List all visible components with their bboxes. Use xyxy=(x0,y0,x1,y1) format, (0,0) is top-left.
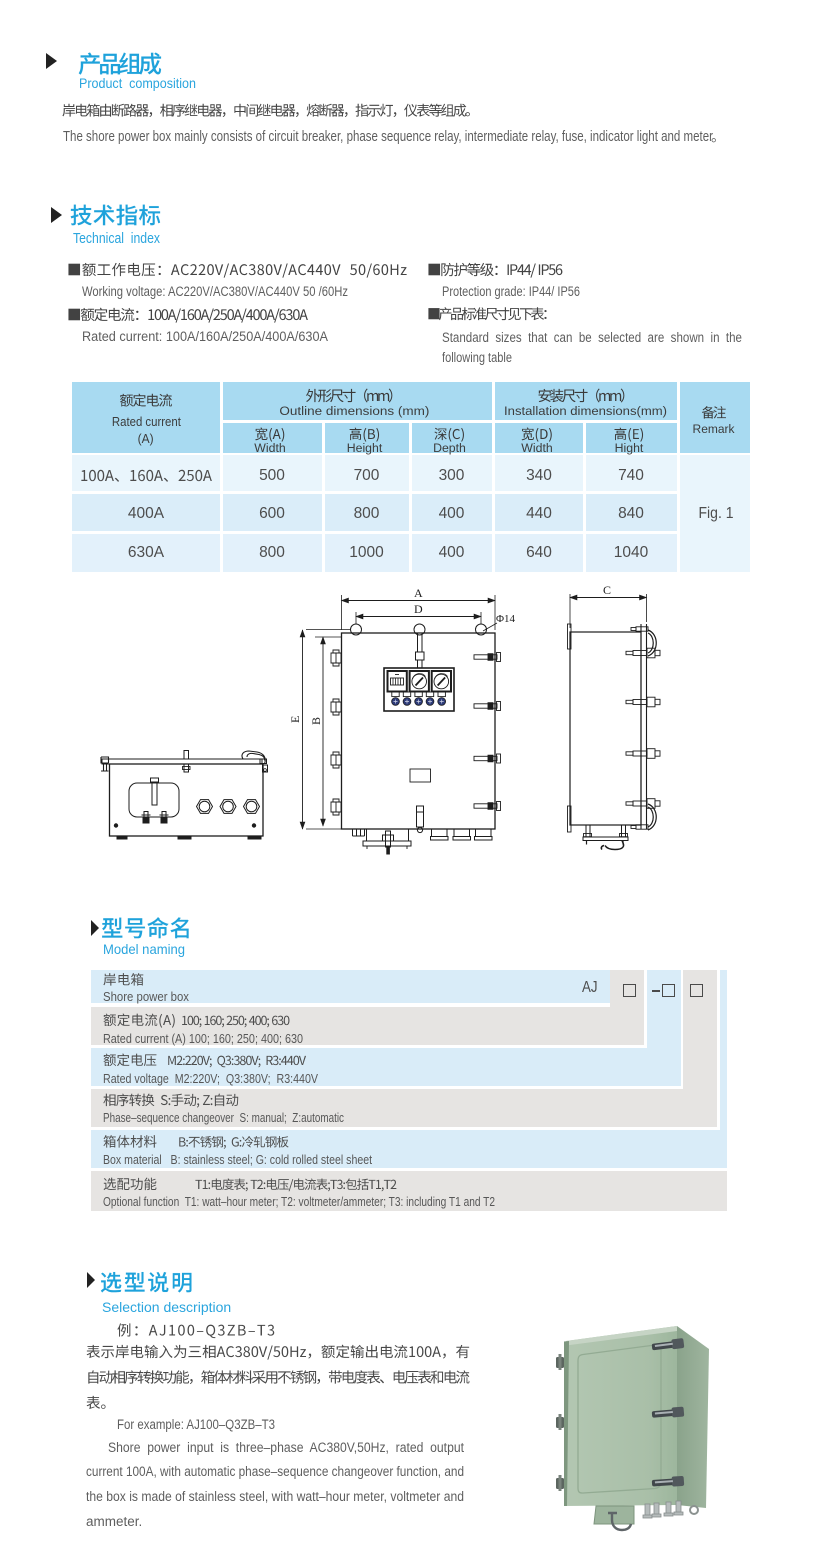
svg-text:E: E xyxy=(288,716,302,723)
svg-text:Φ14: Φ14 xyxy=(496,613,516,625)
svg-text:D: D xyxy=(414,602,423,616)
svg-text:C: C xyxy=(603,585,611,597)
svg-text:A: A xyxy=(414,586,423,600)
svg-text:B: B xyxy=(309,717,323,725)
